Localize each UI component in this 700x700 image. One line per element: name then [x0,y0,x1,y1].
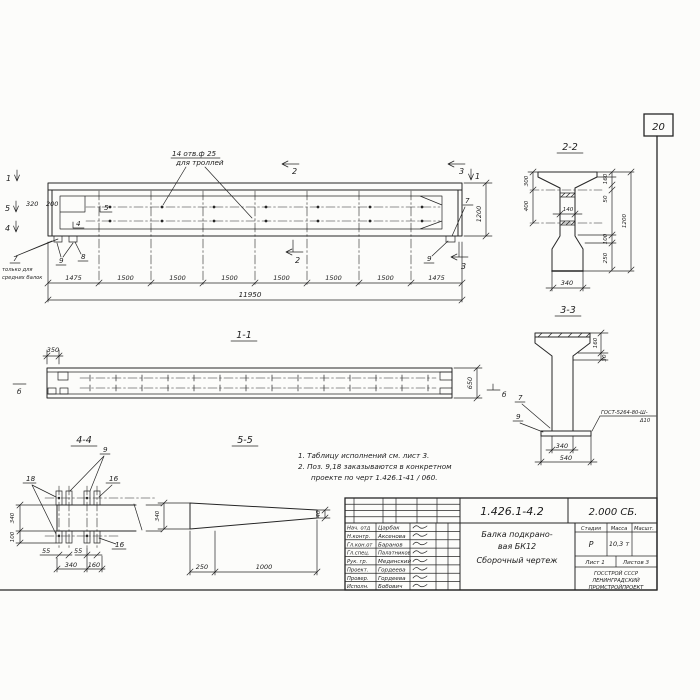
section-1-1: 1-1 350 650 б б [13,330,507,401]
trolley-holes [109,206,424,223]
section-1-1-title: 1-1 [236,330,252,341]
drawing-sheet: 20 14 отв.ф 25 для троллей 1 5 4 [0,0,700,700]
org-line2: ЛЕНИНГРАДСКИЙ [591,577,640,584]
left-note-line1: только для [2,267,33,273]
dim-140: 140 [563,207,574,213]
weld-note-line1: ГОСТ-5264-80-Ш- [601,410,648,416]
dim-650: 650 [466,377,474,389]
marker-b-right: б [502,390,507,399]
sheets-total: Листов 3 [622,560,650,566]
dim-1200-22: 1200 [622,213,628,228]
drawing-title-line1: Балка подкрано- [481,530,552,539]
col-scale: Масшт. [634,526,654,532]
col-stage: Стадия [581,526,601,532]
title-block: 1.426.1-4.2 2.000 СБ. Нач. отд Царбак Н.… [345,498,657,591]
pos-9-33: 9 [516,412,521,421]
dim-400: 400 [524,200,530,211]
section-marker-2-top: 2 [292,167,297,176]
dim-350: 350 [47,346,59,354]
dim-total: 11950 [239,290,262,299]
dim-160-44: 160 [88,561,100,569]
dim-chain-3: 1500 [221,274,238,282]
left-note-line2: средних балок [2,275,43,281]
row-role-0: Нач. отд [347,526,371,532]
dim-50-22: 50 [603,195,609,203]
section-5-5-title: 5-5 [237,435,253,446]
section-2-2: 2-2 140 300 400 160 50 100 250 1200 340 [524,142,634,291]
pos-9-right: 9 [427,254,432,263]
row-name-3: Палатников [378,551,411,557]
doc-number: 1.426.1-4.2 [480,505,543,518]
row-role-5: Проект. [347,567,368,573]
section-marker-4-left: 4 [5,224,10,233]
sheet-number: Лист 1 [584,560,605,566]
dim-chain-4: 1500 [273,274,290,282]
dim-1200-right: 1200 [464,180,492,239]
row-role-1: Н.контр. [347,534,370,540]
holes-callout-line2: для троллей [175,158,224,167]
row-name-7: Бобович [378,584,403,590]
dim-chain-2: 1500 [169,274,186,282]
dim-100-22: 100 [603,233,609,244]
pos-4: 4 [76,219,81,228]
pos-9-44: 9 [103,445,108,454]
holes-callout-line1: 14 отв.ф 25 [172,149,217,158]
mass-value: 10,3 т [609,540,630,548]
dim-160-33: 160 [593,337,599,348]
note-line2: 2. Поз. 9,18 заказываются в конкретном [298,462,452,471]
section-4-4: 4-4 9 18 16 16 340 100 55 55 340 160 [10,435,162,572]
pos-8: 8 [81,252,86,261]
pos-9-left: 9 [59,256,64,265]
staff-rows: Нач. отд Царбак Н.контр. Аксенова Гл.кон… [347,526,427,590]
pos-7-33: 7 [518,393,523,402]
dim-55-second: 55 [74,547,82,555]
section-marker-1-left: 1 [6,174,11,183]
dim-250-22: 250 [603,252,609,263]
org-line1: ГОССТРОЙ СССР [594,570,639,577]
dim-300: 300 [524,175,530,186]
pos-16-right: 16 [109,474,119,483]
dim-1000-55: 1000 [256,563,273,571]
row-role-7: Исполн. [347,584,369,590]
section-4-4-title: 4-4 [76,435,92,446]
row-role-4: Рук. гр. [347,559,367,565]
stage-value: Р [589,540,594,549]
row-role-3: Гл.спец. [347,551,369,557]
dim-chain-6: 1500 [377,274,394,282]
dim-40-55: 40 [316,510,322,518]
section-marker-1-right: 1 [475,172,480,181]
dim-540-33: 540 [560,454,572,462]
dim-chain-7: 1475 [428,274,445,282]
dim-chain-5: 1500 [325,274,342,282]
section-3-3: 3-3 160 30 7 9 ГОСТ-5264-80-Ш- Δ10 340 5… [513,305,656,465]
doc-code: 2.000 СБ. [589,507,638,518]
sheet-frame: 20 [0,114,673,590]
drawing-canvas: 20 14 отв.ф 25 для троллей 1 5 4 [0,0,700,700]
dim-chain-1: 1500 [117,274,134,282]
elevation-view: 14 отв.ф 25 для троллей 1 5 4 320 200 5 … [2,149,492,303]
dim-55-first: 55 [42,547,50,555]
dim-200: 200 [46,200,58,208]
dim-340-55: 340 [155,510,161,521]
dim-250-55: 250 [196,563,208,571]
weld-note-line2: Δ10 [639,418,651,424]
pos-18-44: 18 [26,474,36,483]
row-name-6: Гордеева [378,576,406,582]
dim-340-22: 340 [561,279,573,287]
section-marker-5-left: 5 [5,204,10,213]
pos-5: 5 [104,203,109,212]
dim-30-33: 30 [602,354,608,362]
section-2-2-title: 2-2 [562,142,578,153]
col-mass: Масса [611,526,628,532]
dim-340-33: 340 [556,442,568,450]
dim-100-44: 100 [10,531,16,542]
marker-b-left: б [17,387,22,396]
dim-chain-0: 1475 [65,274,82,282]
dim-160-22: 160 [603,173,609,184]
dim-320: 320 [26,200,38,208]
page-number: 20 [652,122,665,133]
dim-340-side-44: 340 [10,512,16,523]
note-line1: 1. Таблицу исполнений см. лист 3. [298,451,429,460]
drawing-title-line2: вая БК12 [498,542,536,551]
row-name-2: Баранов [378,542,403,548]
row-name-0: Царбак [378,526,400,532]
pos-7-right: 7 [465,196,470,205]
note-line3: проекте по черт 1.426.1-41 / 060. [311,473,438,482]
row-role-6: Провер. [347,576,369,582]
pos-16-bottom: 16 [115,540,125,549]
section-marker-3-top: 3 [459,167,464,176]
dim-340-bottom-44: 340 [65,561,77,569]
row-name-4: Мединский [378,559,412,565]
section-cut-markers-left: 1 5 4 [5,170,20,233]
notes: 1. Таблицу исполнений см. лист 3. 2. Поз… [298,451,452,482]
dim-1200-text: 1200 [475,206,483,223]
section-marker-2-bottom: 2 [295,256,300,265]
row-role-2: Гл.кон.от [347,542,373,548]
drawing-title-line3: Сборочный чертеж [477,556,559,565]
org-line3: ПРОМСТРОЙПРОЕКТ [589,584,645,591]
row-name-1: Аксенова [377,534,406,540]
section-3-3-title: 3-3 [560,305,576,316]
row-name-5: Гордеева [378,567,406,573]
